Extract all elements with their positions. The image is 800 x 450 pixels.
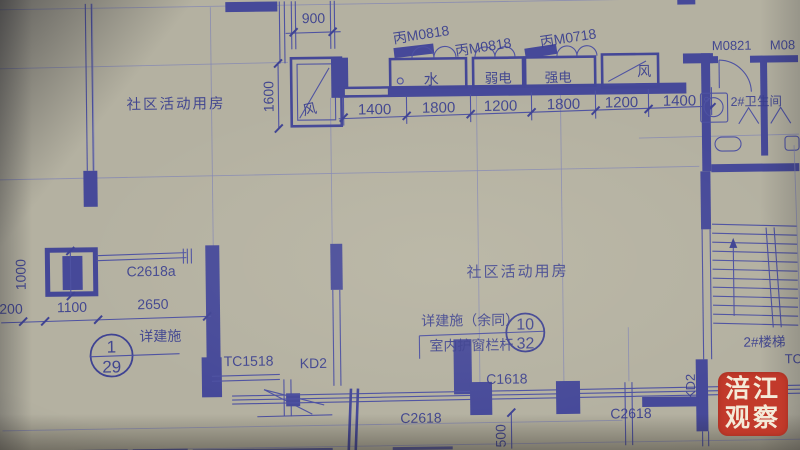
room-label-center: 社区活动用房: [466, 263, 568, 281]
window-tc1518-label: TC1518: [224, 353, 274, 370]
dim-top-2: 1200: [484, 98, 518, 115]
dim-left-2: 2650: [137, 296, 169, 312]
dim-left-1: 1100: [57, 299, 88, 315]
window-c2618a-label: C2618a: [126, 263, 175, 280]
stair-label: 2#楼梯: [743, 334, 785, 350]
door-label-m0818-a: 丙M0818: [392, 22, 451, 46]
watermark-line2: 观察: [718, 404, 788, 433]
tc-partial-label: TC1: [785, 351, 800, 366]
dim-top-0: 1400: [358, 101, 392, 118]
door-kd2-right-label: KD2: [683, 374, 698, 399]
dim-top-4: 1200: [605, 94, 639, 111]
weak-current-label: 弱电: [485, 71, 512, 86]
dim-900-value: 900: [302, 10, 326, 26]
dim-500-value: 500: [492, 424, 508, 448]
strong-current-shaft: 强电: [524, 43, 597, 86]
note-rail-label: 室内护窗栏杆: [429, 337, 513, 354]
floorplan-drawing: 900 风 水 弱电 强电 风: [0, 0, 800, 450]
watermark-line1: 涪江: [718, 375, 788, 404]
room-label-top-left: 社区活动用房: [126, 95, 225, 113]
window-c2618-left-label: C2618: [400, 410, 442, 427]
door-kd2-bottom-label: KD2: [300, 355, 328, 371]
strong-current-label: 强电: [545, 70, 572, 85]
bubble1-bottom: 29: [102, 357, 121, 376]
dim-1600: 1600: [260, 59, 283, 132]
blueprint-photo: 900 风 水 弱电 强电 风: [0, 0, 800, 450]
bay-window-c2618a: C2618a: [47, 249, 192, 295]
door-m08-partial-label: M08: [770, 37, 795, 52]
dim-top-1: 1800: [422, 99, 456, 116]
dim-1600-value: 1600: [260, 81, 276, 113]
grid-lines: [0, 0, 800, 450]
bathroom-area: M0821 M08 2#卫生间: [683, 37, 800, 172]
air-shaft-right: 风: [602, 54, 658, 88]
note-detail-rest-label: 详建施（余同）: [421, 312, 519, 329]
window-c2618-right-label: C2618: [610, 405, 652, 422]
bubble1-top: 1: [107, 337, 117, 356]
dim-900: 900: [285, 1, 341, 50]
bottom-window-band: [232, 378, 800, 450]
air-shaft-right-label: 风: [637, 63, 651, 79]
window-c1618-label: C1618: [486, 370, 528, 387]
door-label-m0818-b: 丙M0818: [454, 34, 513, 58]
bathroom-label: 2#卫生间: [730, 94, 782, 109]
left-wall: [81, 4, 97, 207]
dim-500: 500: [492, 409, 515, 449]
dim-top-5: 1400: [663, 92, 697, 109]
dim-left-0: 200: [0, 301, 23, 317]
bubble2-top: 10: [516, 316, 534, 333]
dim-1000-value: 1000: [12, 259, 28, 291]
note-detail-label: 详建施: [139, 328, 181, 345]
bubble2-bottom: 32: [516, 335, 534, 352]
dim-top-3: 1800: [547, 96, 581, 113]
dim-row-left: 200 1100 2650: [0, 295, 211, 326]
watermark-stamp: 涪江 观察: [718, 372, 788, 436]
water-shaft-label: 水: [424, 72, 439, 89]
door-m0821-label: M0821: [712, 38, 752, 53]
air-shaft-left-label: 风: [301, 100, 318, 119]
